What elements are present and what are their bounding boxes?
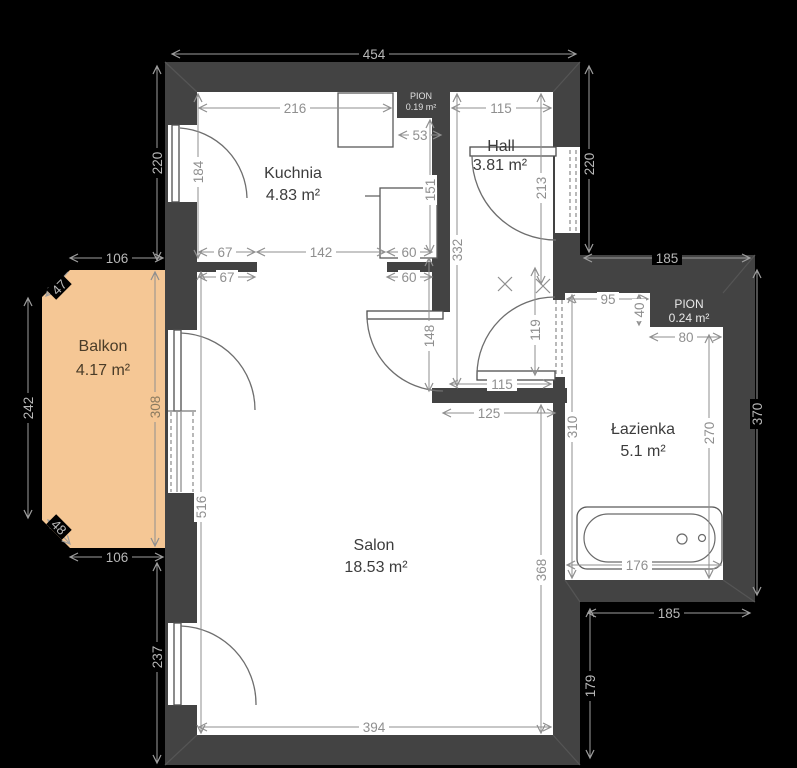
room-area-kuchnia: 4.83 m² [266,187,321,204]
svg-text:115: 115 [490,101,512,116]
svg-text:60: 60 [401,270,416,285]
room-area-balkon: 4.17 m² [76,362,131,379]
svg-text:185: 185 [656,251,679,266]
svg-text:454: 454 [363,47,386,62]
svg-text:310: 310 [565,416,580,439]
room-label-balkon: Balkon [79,338,128,355]
svg-text:53: 53 [412,128,427,143]
floor-plan: 454 220 220 106 47 242 48 106 [0,0,797,768]
svg-text:40: 40 [632,302,647,317]
room-area-hall: 3.81 m² [473,157,528,174]
svg-text:95: 95 [600,292,615,307]
svg-text:148: 148 [422,325,437,348]
svg-text:142: 142 [310,245,333,260]
salon-balcony-opening2 [168,623,197,705]
svg-text:176: 176 [626,558,649,573]
svg-text:151: 151 [423,179,438,202]
svg-text:332: 332 [450,239,465,262]
salon-balcony-door-leaf [174,330,181,411]
svg-text:119: 119 [528,319,543,341]
room-label-salon: Salon [354,537,395,554]
svg-text:368: 368 [534,559,549,582]
room-area-pion-top: 0.19 m² [406,102,437,112]
svg-text:213: 213 [534,177,549,200]
svg-text:394: 394 [363,720,386,735]
svg-text:184: 184 [191,160,206,183]
svg-text:106: 106 [106,550,129,565]
svg-text:106: 106 [106,251,129,266]
kitchen-balcony-door-leaf [172,125,179,202]
svg-text:80: 80 [678,330,693,345]
room-area-lazienka: 5.1 m² [620,443,666,460]
svg-text:67: 67 [217,245,232,260]
svg-text:67: 67 [219,270,234,285]
svg-text:370: 370 [750,403,765,426]
salon-door-leaf [367,311,443,319]
svg-text:237: 237 [150,646,165,669]
svg-text:220: 220 [150,152,165,175]
dim-pion-height: 40 [632,295,647,325]
room-label-pion: PION [674,297,703,311]
svg-text:308: 308 [148,396,163,419]
svg-text:60: 60 [401,245,416,260]
bathroom-doorway [553,300,565,377]
room-label-pion-top: PION [410,91,432,101]
room-area-pion: 0.24 m² [669,311,710,325]
room-area-salon: 18.53 m² [344,559,408,576]
room-label-lazienka: Łazienka [611,421,675,438]
floor-plan-canvas: 454 220 220 106 47 242 48 106 [0,0,797,768]
room-label-kuchnia: Kuchnia [264,165,322,182]
svg-text:115: 115 [491,377,513,392]
svg-text:216: 216 [284,101,307,116]
svg-text:270: 270 [702,422,717,445]
svg-text:125: 125 [478,406,501,421]
svg-text:242: 242 [21,397,36,420]
svg-text:185: 185 [658,606,681,621]
svg-text:179: 179 [583,675,598,698]
svg-text:220: 220 [582,153,597,176]
salon-balcony-door2-leaf [174,623,181,705]
svg-text:516: 516 [194,496,209,519]
room-label-hall: Hall [487,138,515,155]
kitchen-counter [338,93,393,147]
